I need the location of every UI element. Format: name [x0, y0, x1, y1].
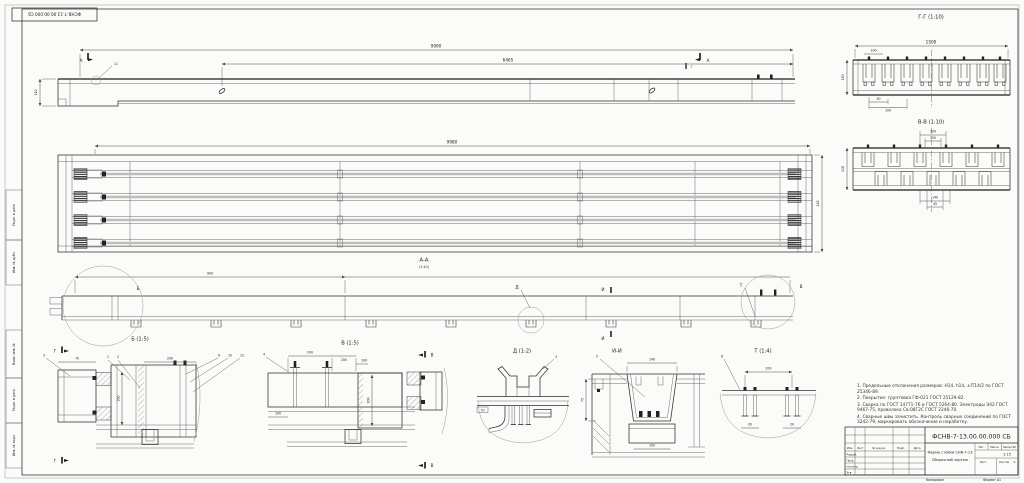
tech-requirement-line: 4. Сварные швы зачистить. Контроль сварн… [857, 415, 1019, 426]
dim-gg-total: 1500 [926, 40, 937, 45]
pos-2: 2 [117, 355, 119, 359]
section-gg-title: Г-Г (1:10) [918, 15, 944, 21]
tb-header-list: Лист [857, 446, 864, 450]
callout-i-top: И [601, 287, 604, 292]
detail-v-title: В (1:5) [341, 341, 359, 347]
pos-10: 10 [228, 354, 232, 358]
dim-v-vert: 300 [367, 397, 371, 403]
dim-top-total: 9990 [431, 44, 442, 49]
tb-name-line1: Ферма стойки СНВ-7-13 [927, 451, 972, 455]
dim-vv-bot2: 45 [933, 202, 937, 206]
pos-weld: 11 [114, 62, 118, 66]
top-elevation-view: 9990 6465 110 11 А А Г [34, 44, 795, 107]
detail-d-title: Д (1:2) [513, 349, 531, 355]
dim-aa-partial: 900 [207, 272, 213, 276]
pos-1: 1 [107, 355, 109, 359]
cut-letter-g-bottom: Г [54, 459, 57, 464]
detail-b-title: Б (1:5) [131, 337, 149, 343]
title-block: Изм. Лист № докум. Подп. Дата Разраб. Пр… [845, 427, 1018, 482]
dim-t-bot1: 20 [748, 423, 752, 427]
dim-vv-top2: 100 [930, 136, 936, 140]
tb-lit-label: Лит. [978, 445, 984, 449]
dim-gg-bot2: 100 [885, 109, 891, 113]
tb-row-razrab: Разраб. [847, 453, 858, 457]
pos-6: 6 [721, 355, 723, 359]
tech-requirement-line: 2. Покрытие: грунтовка ГФ-021 ГОСТ 25129… [857, 396, 1019, 402]
section-vv-title: В-В (1:10) [918, 120, 944, 126]
cut-letter-g: Г [691, 65, 693, 69]
dim-vv-top1: 300 [930, 130, 936, 134]
section-aa-view: А-А (1:10) 900 Б В Д И И Т [50, 258, 803, 347]
pos-4: 4 [263, 353, 265, 357]
tb-sheet-label: Лист [980, 460, 987, 464]
pos-5: 5 [596, 355, 598, 359]
dim-v-d1: 200 [307, 351, 313, 355]
dim-ii-top: 140 [649, 358, 655, 362]
cut-letter-a-left: А [80, 58, 83, 63]
tb-header-docum: № докум. [872, 446, 885, 450]
dim-gg-height: 150 [841, 74, 845, 80]
dim-ii-bot: 100 [649, 444, 655, 448]
detail-d-view: Д (1:2) 70 3 [477, 349, 569, 444]
detail-b-view: Б (1:5) Г Г 1 2 3 9 10 12 70 200 300 [43, 337, 244, 464]
section-ii-view: И-И 5 140 100 75 [581, 349, 706, 458]
dim-b-right: 200 [167, 357, 173, 361]
cut-letter-g-top: Г [54, 349, 57, 354]
pos-12: 12 [240, 354, 244, 358]
drawing-sheet: ФСНВ-7-13.00.00.000 СБ Подп. и дата Инв.… [0, 0, 1024, 483]
pos-9: 9 [218, 354, 220, 358]
tb-kopiroval: Копировал [926, 478, 944, 482]
dim-gg-bot1: 50 [876, 97, 880, 101]
section-vv-view: В-В (1:10) 300 100 140 45 118 [841, 120, 1010, 213]
margin-label: Инв. № дубл. [12, 251, 16, 273]
tb-format: Формат А1 [983, 478, 1001, 482]
tb-scale-label: Масштаб [1003, 445, 1016, 449]
cut-letter-v-top: В [431, 353, 434, 358]
dim-t-top: 200 [765, 367, 771, 371]
tb-sheets-value: 6 [1014, 460, 1016, 464]
cut-letter-v-bottom: В [431, 463, 434, 468]
section-aa-scale: (1:10) [419, 265, 429, 269]
pos-d: 3 [555, 355, 557, 359]
dim-vv-bot1: 140 [932, 196, 938, 200]
dim-plan-total: 9980 [447, 140, 458, 145]
stamp-doc-number: ФСНВ-7-13.00.00.000 СБ [28, 12, 81, 17]
tb-row-nkontr: Н.контр. [847, 465, 859, 469]
plan-chords [72, 169, 812, 249]
tb-sheets-label: Листов [999, 460, 1009, 464]
tech-requirements: 1. Предельные отклонения размеров: Н14, … [857, 384, 1019, 427]
tb-header-izm: Изм. [847, 446, 853, 450]
dim-ii-left: 75 [581, 398, 585, 402]
tb-scale-value: 1:15 [1003, 453, 1011, 457]
detail-t-title: Т (1:4) [753, 349, 771, 355]
top-left-stamp: ФСНВ-7-13.00.00.000 СБ [12, 8, 97, 21]
tb-row-prov: Пров. [847, 459, 855, 463]
tb-mass-label: Масса [990, 445, 999, 449]
callout-d: Д [515, 285, 519, 290]
margin-label: Инв. № подл. [12, 434, 16, 456]
cut-letter-a-right: А [707, 58, 710, 63]
tb-header-data: Дата [914, 446, 921, 450]
callout-i-bottom: И [601, 336, 604, 341]
margin-label: Подп. и дата [12, 204, 16, 226]
margin-label: Взам. инв. № [12, 343, 16, 365]
tb-name-line2: Сборочный чертеж [932, 458, 969, 462]
detail-v-view: В (1:5) 200 200 100 300 100 4 В В [263, 341, 448, 469]
callout-v: В [800, 284, 803, 289]
dim-vv-height: 118 [841, 166, 845, 172]
dim-d-tag: 70 [480, 408, 484, 412]
callout-b: Б [137, 286, 140, 291]
callout-t: Т [739, 283, 743, 288]
dim-plan-height: 118 [816, 200, 820, 206]
dim-v-bot: 100 [275, 412, 281, 416]
detail-b-boundary-circle [63, 266, 143, 346]
detail-v-boundary-circle [741, 275, 795, 329]
margin-label: Подп. и дата [12, 389, 16, 411]
tb-header-podp: Подп. [897, 446, 905, 450]
dim-top-height: 110 [34, 89, 38, 95]
pos-3: 3 [43, 354, 45, 358]
tech-requirement-line: 3. Сварка по ГОСТ 14771-76 и ГОСТ 5264-8… [857, 403, 1019, 414]
plan-view: 9980 118 [58, 140, 822, 253]
detail-t-view: Т (1:4) 6 200 20 20 [720, 349, 816, 439]
dim-b-left: 70 [75, 357, 79, 361]
section-aa-title: А-А [420, 258, 429, 264]
tb-doc-number: ФСНВ-7-13.00.00.000 СБ [932, 434, 1011, 441]
dim-top-partial: 6465 [503, 58, 514, 63]
section-gg-view: Г-Г (1:10) 1500 100 50 100 150 [841, 15, 1010, 113]
section-ii-title: И-И [612, 349, 622, 355]
tech-requirement-line: 1. Предельные отклонения размеров: Н14, … [857, 384, 1019, 395]
dim-v-d2: 200 [341, 358, 347, 362]
tb-row-utv: Утв. [847, 471, 853, 475]
dim-gg-top: 100 [870, 49, 876, 53]
dim-b-vert: 300 [117, 395, 121, 401]
dim-t-bot2: 20 [790, 423, 794, 427]
dim-v-d3: 100 [361, 359, 367, 363]
margin-boxes: Подп. и дата Инв. № дубл. Взам. инв. № П… [6, 190, 22, 468]
